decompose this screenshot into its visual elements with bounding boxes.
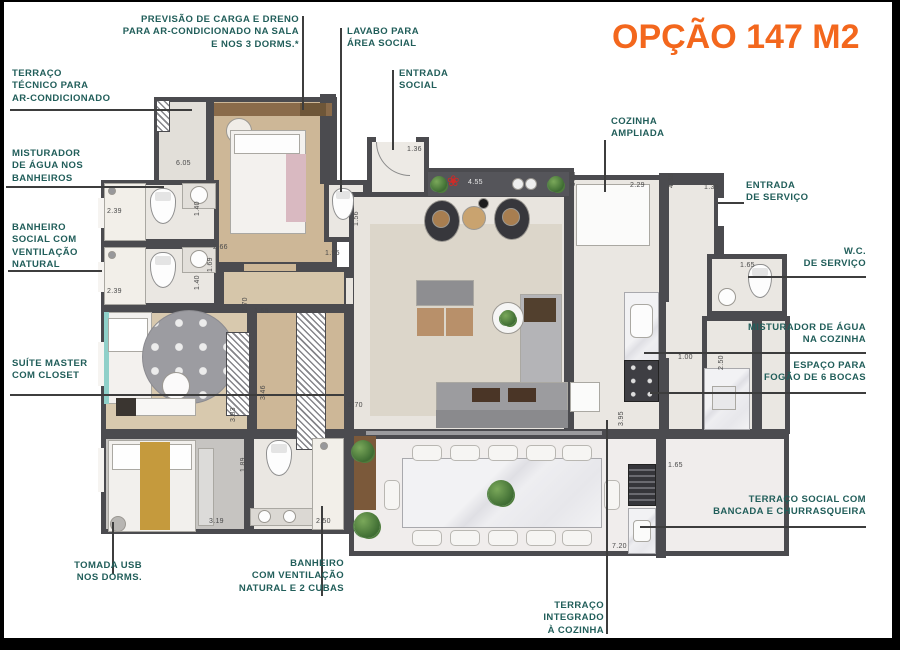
island-plant-2: [548, 176, 564, 192]
island-plant-1: [431, 176, 447, 192]
dimension-1.55-11: 1.55: [254, 308, 269, 315]
label-banheiro-2cubas: BANHEIRO COM VENTILAÇÃO NATURAL E 2 CUBA…: [202, 558, 344, 595]
dimension-4.55-18: 4.55: [468, 179, 483, 186]
chair-top-3: [488, 445, 518, 461]
dimension-1.56-9: 1.56: [353, 211, 360, 226]
dimension-1.69-7: 1.69: [207, 257, 214, 272]
label-tomada-usb: TOMADA USB NOS DORMS.: [32, 560, 142, 585]
label-cozinha-ampliada-leader: [604, 140, 606, 192]
dimension-1.65-23: 1.65: [740, 262, 755, 269]
shower-suite: [312, 438, 344, 530]
throw-dorm2: [286, 154, 306, 222]
label-entrada-social-leader: [392, 70, 394, 150]
coffee-table-plant: [500, 310, 516, 326]
dimension-3.95-26: 3.95: [618, 411, 625, 426]
dimension-4.38-21: 4.38: [668, 173, 675, 188]
terrace-slider-line: [366, 431, 602, 435]
chair-left: [384, 480, 400, 510]
chair-bottom-4: [526, 530, 556, 546]
laundry-tank: [712, 386, 736, 410]
label-terraco-integrado-leader: [606, 420, 608, 634]
label-wc-servico-leader: [748, 276, 866, 278]
cuba-2: [283, 510, 296, 523]
console-box-dark: [116, 398, 136, 416]
terrace-plant-pot: [354, 512, 380, 538]
page-title: OPÇÃO 147 M2: [612, 18, 860, 57]
side-table-tan: [462, 206, 486, 230]
label-suite-master: SUÍTE MASTER COM CLOSET: [12, 358, 142, 383]
chair-bottom-1: [412, 530, 442, 546]
dimension-1.89-15: 1.89: [240, 457, 247, 472]
sofa-bottom-back: [436, 410, 568, 428]
runner-gold-master: [140, 442, 170, 530]
window-suite-2: [98, 448, 104, 492]
dimension-5.55-19: 5.55: [570, 171, 577, 186]
armchair-1-cushion: [432, 210, 450, 228]
sofa-bottom-pillow-2: [508, 388, 536, 402]
screenshot-root: { "title": {"text": "OPÇÃO 147 M2", "col…: [0, 0, 900, 650]
sofa-bottom-pillow-1: [472, 388, 500, 402]
label-entrada-servico: ENTRADA DE SERVIÇO: [746, 180, 841, 205]
kitchen-sink: [630, 304, 653, 338]
armchair-2-cushion: [502, 208, 520, 226]
stove-6-bocas: [624, 360, 659, 402]
label-lavabo: LAVABO PARA ÁREA SOCIAL: [347, 26, 457, 51]
cuba-1: [258, 510, 271, 523]
label-entrada-servico-leader: [718, 202, 744, 204]
dimension-1.40-5: 1.40: [194, 275, 201, 290]
label-previsao-ar: PREVISÃO DE CARGA E DRENO PARA AR-CONDIC…: [84, 14, 299, 51]
label-terraco-tecnico: TERRAÇO TÉCNICO PARA AR-CONDICIONADO: [12, 68, 152, 105]
label-cozinha-ampliada: COZINHA AMPLIADA: [611, 116, 701, 141]
dimension-2.50-25: 2.50: [718, 355, 725, 370]
chair-top-2: [450, 445, 480, 461]
sofa-seat-1: [417, 308, 444, 336]
showerhead-bath1: [108, 187, 116, 195]
chair-bottom-2: [450, 530, 480, 546]
entry-door-gap: [376, 135, 416, 142]
chair-top-5: [562, 445, 592, 461]
door-corredor-living: [346, 278, 353, 304]
sink-bath2: [190, 250, 208, 268]
dimension-7.20-28: 7.20: [612, 543, 627, 550]
cooktop-flower-icon: ❀: [447, 174, 463, 190]
label-fogao-leader: [650, 392, 866, 394]
island-sink-1: [512, 178, 524, 190]
dimension-2.39-2: 2.39: [107, 208, 122, 215]
label-previsao-ar-leader: [302, 16, 304, 110]
cozinha-nook: [576, 184, 650, 246]
dimension-2.39-3: 2.39: [107, 288, 122, 295]
dimension-3.19-16: 3.19: [209, 518, 224, 525]
label-terraco-social: TERRAÇO SOCIAL COM BANCADA E CHURRASQUEI…: [640, 494, 866, 519]
dimension-2.29-20: 2.29: [630, 182, 645, 189]
wc-sink: [718, 288, 736, 306]
chair-top-1: [412, 445, 442, 461]
sideboard-plant: [352, 440, 374, 462]
ac-louver-hatch: [156, 100, 170, 132]
label-lavabo-leader: [340, 28, 342, 192]
corner-sofa-cushion: [524, 298, 556, 322]
dimension-2.66-6: 2.66: [213, 244, 228, 251]
sofa-seat-2: [446, 308, 473, 336]
dimension-1.00-24: 1.00: [678, 354, 693, 361]
dimension-1.35-22: 1.35: [704, 184, 719, 191]
dimension-6.05-1: 6.05: [176, 160, 191, 167]
label-misturador-cozinha: MISTURADOR DE ÁGUA NA COZINHA: [654, 322, 866, 347]
room-corredor: [219, 267, 349, 309]
bench-master: [198, 448, 214, 526]
pillow-dorm2: [234, 134, 300, 154]
dimension-2.50-17: 2.50: [316, 518, 331, 525]
bancada-sink: [633, 520, 651, 542]
side-table-square: [570, 382, 600, 412]
island-sink-2: [525, 178, 537, 190]
dimension-3.46-12: 3.46: [260, 385, 267, 400]
door-dorm2: [244, 264, 296, 271]
table-centerpiece-plant: [488, 480, 514, 506]
label-misturador-banheiros: MISTURADOR DE ÁGUA NOS BANHEIROS: [12, 148, 122, 185]
dimension-1.36-0: 1.36: [407, 146, 422, 153]
label-entrada-social: ENTRADA SOCIAL: [399, 68, 479, 93]
floor-lamp: [478, 198, 489, 209]
label-terraco-social-leader: [640, 526, 866, 528]
chair-bottom-5: [562, 530, 592, 546]
floorplan-canvas: OPÇÃO 147 M2 ❀ PREVISÃO DE CARGA E DRENO…: [4, 2, 892, 638]
dimension-5.70-14: 5.70: [348, 402, 363, 409]
dimension-3.83-13: 3.83: [230, 407, 237, 422]
chair-top-4: [526, 445, 556, 461]
closet-hatch-right: [296, 312, 326, 450]
label-wc-servico: W.C. DE SERVIÇO: [764, 246, 866, 271]
dimension-1.65-27: 1.65: [668, 462, 683, 469]
dimension-1.95-8: 1.95: [325, 250, 340, 257]
label-suite-master-leader: [10, 394, 344, 396]
showerhead-suite: [320, 442, 328, 450]
label-misturador-banheiros-leader: [6, 186, 164, 188]
sofa-back: [416, 280, 474, 306]
label-terraco-integrado: TERRAÇO INTEGRADO À COZINHA: [522, 600, 604, 637]
label-banheiro-social: BANHEIRO SOCIAL COM VENTILAÇÃO NATURAL: [12, 222, 127, 271]
dimension-1.40-4: 1.40: [194, 201, 201, 216]
closet-hatch-left: [226, 332, 250, 416]
dimension-2.70-10: 2.70: [242, 297, 249, 312]
chair-bottom-3: [488, 530, 518, 546]
label-terraco-tecnico-leader: [10, 109, 192, 111]
